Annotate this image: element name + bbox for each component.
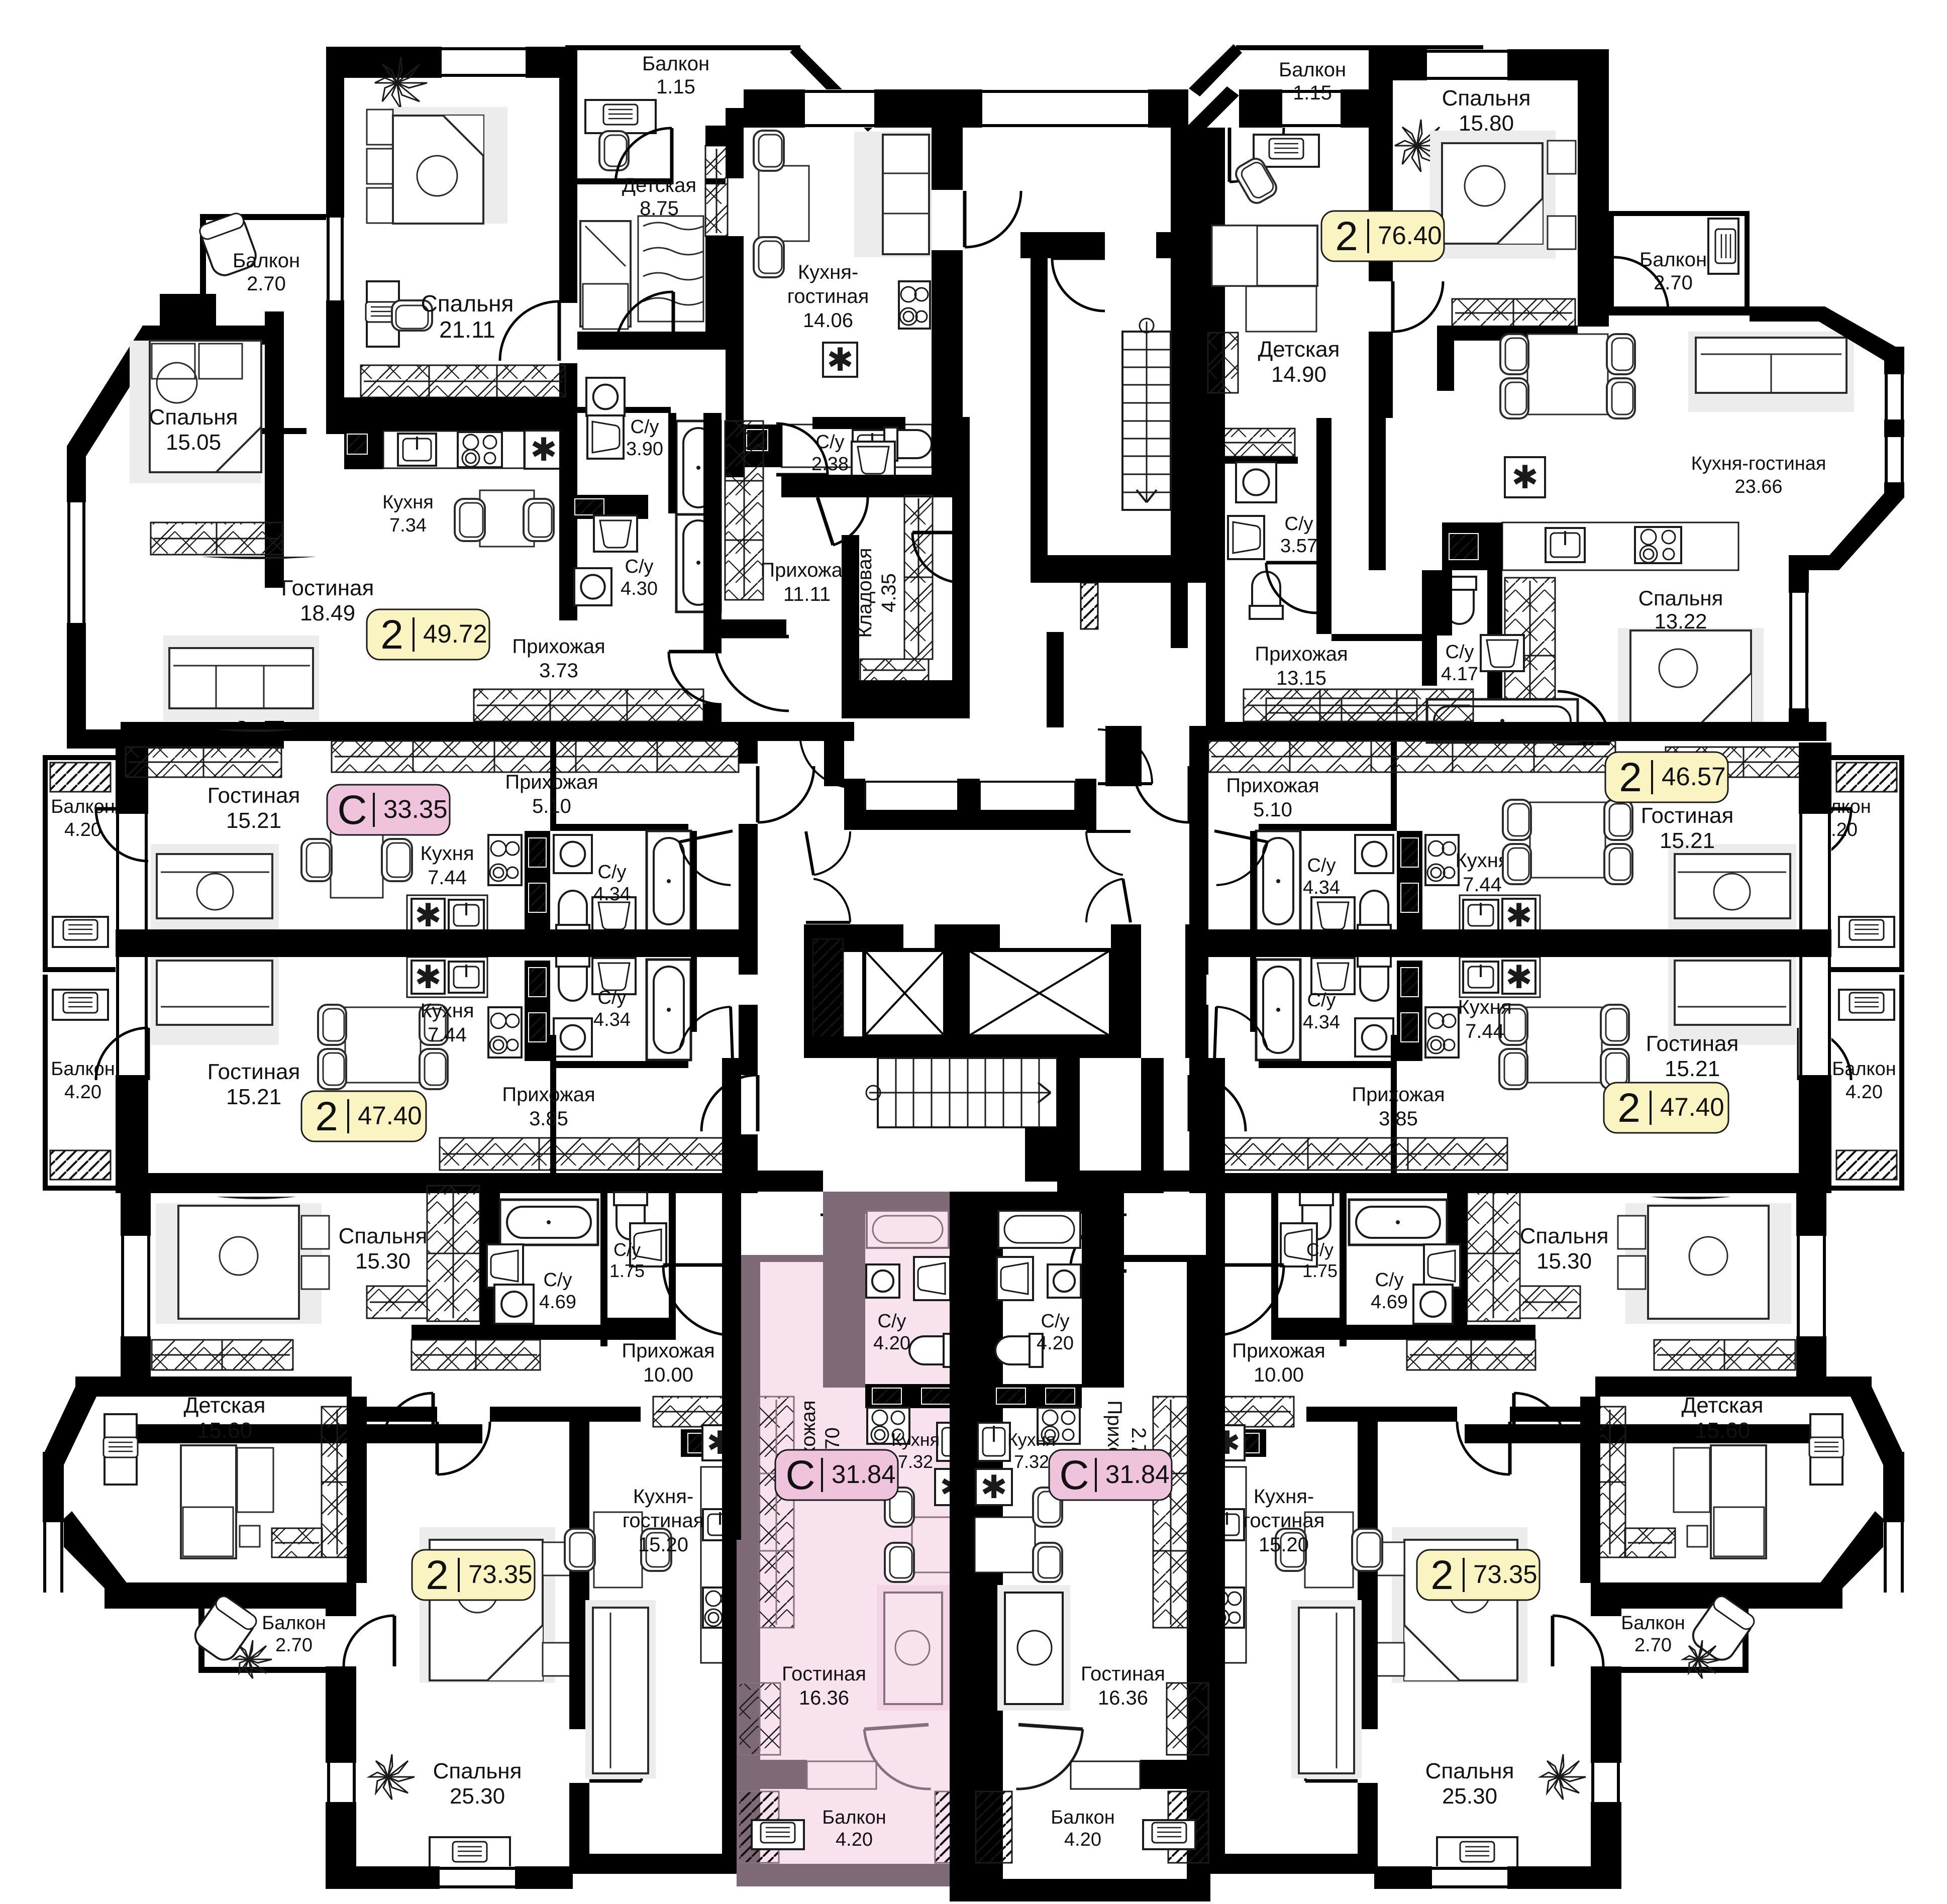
svg-text:73.35: 73.35 <box>468 1560 533 1589</box>
svg-text:4.20: 4.20 <box>1846 1082 1883 1103</box>
svg-text:3.57: 3.57 <box>1280 536 1317 557</box>
svg-text:21.11: 21.11 <box>439 316 495 343</box>
svg-text:✱: ✱ <box>980 1469 1007 1505</box>
svg-text:46.57: 46.57 <box>1662 762 1726 791</box>
svg-text:✱: ✱ <box>415 897 442 933</box>
svg-text:15.21: 15.21 <box>1660 828 1715 853</box>
svg-text:✱: ✱ <box>1505 959 1532 995</box>
svg-text:4.20: 4.20 <box>1037 1333 1074 1354</box>
svg-text:С/у: С/у <box>1041 1311 1070 1332</box>
svg-text:✱: ✱ <box>530 432 557 468</box>
svg-text:С/у: С/у <box>1375 1270 1404 1291</box>
svg-text:4.20: 4.20 <box>64 1082 101 1103</box>
svg-text:гостиная: гостиная <box>787 285 869 307</box>
svg-text:С/у: С/у <box>631 416 659 438</box>
svg-text:гостиная: гостиная <box>623 1510 704 1532</box>
svg-text:25.30: 25.30 <box>1442 1784 1497 1809</box>
svg-text:4.34: 4.34 <box>593 884 631 905</box>
svg-text:31.84: 31.84 <box>1105 1460 1170 1489</box>
svg-text:11.11: 11.11 <box>783 583 831 605</box>
svg-text:33.35: 33.35 <box>383 795 448 823</box>
svg-text:Балкон: Балкон <box>642 53 709 75</box>
svg-text:3.85: 3.85 <box>1379 1108 1418 1130</box>
svg-text:С/у: С/у <box>1307 855 1336 876</box>
svg-text:Кухня: Кухня <box>420 842 474 865</box>
svg-text:2.70: 2.70 <box>275 1635 313 1656</box>
svg-text:31.84: 31.84 <box>832 1460 896 1489</box>
svg-text:7.34: 7.34 <box>389 515 427 536</box>
svg-text:Гостиная: Гостиная <box>281 576 374 600</box>
svg-text:1.75: 1.75 <box>609 1260 645 1281</box>
svg-text:С/у: С/у <box>878 1311 906 1332</box>
svg-text:2: 2 <box>1335 214 1358 259</box>
svg-text:2: 2 <box>1619 755 1642 800</box>
svg-text:Кухня-: Кухня- <box>633 1486 693 1508</box>
svg-text:15.60: 15.60 <box>197 1418 252 1443</box>
svg-text:4.34: 4.34 <box>593 1009 631 1030</box>
svg-text:4.17: 4.17 <box>1441 664 1478 685</box>
svg-text:Балкон: Балкон <box>1832 1059 1896 1080</box>
svg-text:2: 2 <box>1430 1552 1454 1598</box>
svg-text:Кухня-гостиная: Кухня-гостиная <box>1691 453 1826 474</box>
svg-text:7.32: 7.32 <box>1014 1451 1049 1472</box>
svg-text:10.00: 10.00 <box>1254 1364 1304 1386</box>
svg-text:гостиная: гостиная <box>1243 1510 1325 1532</box>
svg-text:Кухня: Кухня <box>382 492 434 513</box>
svg-text:С/у: С/у <box>598 862 627 883</box>
svg-text:18.49: 18.49 <box>300 601 355 625</box>
svg-text:✱: ✱ <box>827 342 854 378</box>
svg-text:Гостиная: Гостиная <box>782 1663 866 1685</box>
svg-text:Прихожая: Прихожая <box>1232 1340 1325 1362</box>
svg-text:2: 2 <box>1617 1085 1641 1131</box>
svg-text:Гостиная: Гостиная <box>208 1060 300 1084</box>
svg-text:Кухня: Кухня <box>891 1429 940 1450</box>
svg-text:✱: ✱ <box>1505 897 1532 933</box>
svg-text:14.90: 14.90 <box>1271 362 1326 387</box>
svg-text:Прихожая: Прихожая <box>1226 775 1319 797</box>
svg-text:15.30: 15.30 <box>355 1249 411 1274</box>
svg-text:4.20: 4.20 <box>873 1333 910 1354</box>
svg-text:16.36: 16.36 <box>799 1687 849 1709</box>
svg-text:Гостиная: Гостиная <box>1641 803 1734 828</box>
svg-text:Прихожая: Прихожая <box>622 1340 714 1362</box>
svg-text:4.20: 4.20 <box>1064 1829 1101 1850</box>
svg-text:С: С <box>785 1452 815 1498</box>
svg-text:5.10: 5.10 <box>532 795 571 817</box>
svg-text:С/у: С/у <box>625 556 654 577</box>
svg-text:Кухня: Кухня <box>1458 996 1511 1018</box>
svg-text:73.35: 73.35 <box>1473 1560 1538 1589</box>
svg-text:13.22: 13.22 <box>1654 609 1707 633</box>
svg-text:Балкон: Балкон <box>51 796 115 817</box>
svg-text:14.06: 14.06 <box>803 309 853 332</box>
svg-text:7.44: 7.44 <box>428 867 467 889</box>
svg-text:7.44: 7.44 <box>1465 1020 1504 1042</box>
svg-text:4.20: 4.20 <box>64 819 101 840</box>
svg-text:Балкон: Балкон <box>1639 249 1707 271</box>
svg-text:15.20: 15.20 <box>638 1534 688 1556</box>
svg-text:Балкон: Балкон <box>233 250 300 272</box>
svg-text:Балкон: Балкон <box>1621 1613 1685 1634</box>
svg-text:15.21: 15.21 <box>1665 1056 1720 1081</box>
svg-text:2.70: 2.70 <box>247 273 286 295</box>
svg-text:7.44: 7.44 <box>428 1024 467 1046</box>
svg-text:10.00: 10.00 <box>643 1364 693 1386</box>
svg-text:Спальня: Спальня <box>1520 1224 1609 1248</box>
svg-text:4.69: 4.69 <box>1371 1292 1408 1313</box>
svg-text:15.30: 15.30 <box>1536 1249 1592 1274</box>
svg-text:23.66: 23.66 <box>1734 476 1782 497</box>
svg-text:С/у: С/у <box>544 1270 572 1291</box>
svg-text:Спальня: Спальня <box>339 1224 428 1248</box>
svg-text:4.20: 4.20 <box>836 1829 873 1850</box>
svg-text:5.10: 5.10 <box>1253 799 1292 821</box>
svg-text:С/у: С/у <box>1446 642 1474 663</box>
svg-text:15.05: 15.05 <box>166 430 221 455</box>
svg-text:2: 2 <box>380 612 403 658</box>
svg-text:1.15: 1.15 <box>1293 82 1332 104</box>
svg-text:Гостиная: Гостиная <box>208 783 300 808</box>
svg-text:3.73: 3.73 <box>539 660 578 682</box>
svg-text:Спальня: Спальня <box>433 1759 522 1783</box>
svg-text:13.15: 13.15 <box>1276 667 1326 689</box>
svg-text:15.21: 15.21 <box>226 808 281 833</box>
svg-text:15.60: 15.60 <box>1695 1418 1750 1443</box>
svg-text:Спальня: Спальня <box>421 290 514 316</box>
svg-text:15.21: 15.21 <box>226 1085 281 1109</box>
svg-text:2: 2 <box>426 1552 449 1598</box>
svg-text:Балкон: Балкон <box>1051 1807 1114 1828</box>
svg-text:4.69: 4.69 <box>539 1292 576 1313</box>
svg-text:Балкон: Балкон <box>1279 59 1346 81</box>
svg-text:3.85: 3.85 <box>529 1108 568 1130</box>
svg-text:С/у: С/у <box>1306 1239 1334 1260</box>
svg-text:Балкон: Балкон <box>822 1807 886 1828</box>
svg-text:С/у: С/у <box>598 987 627 1008</box>
svg-text:С/у: С/у <box>1307 990 1336 1011</box>
svg-text:4.34: 4.34 <box>1303 877 1340 898</box>
svg-text:2: 2 <box>315 1094 338 1139</box>
svg-text:47.40: 47.40 <box>1660 1093 1724 1121</box>
svg-text:Спальня: Спальня <box>1425 1759 1514 1783</box>
svg-text:Кухня: Кухня <box>1007 1429 1056 1450</box>
svg-text:✱: ✱ <box>1511 459 1539 495</box>
svg-text:Гостиная: Гостиная <box>1646 1031 1739 1056</box>
svg-text:С/у: С/у <box>1285 513 1313 535</box>
svg-text:Балкон: Балкон <box>51 1059 115 1080</box>
svg-text:Прихожая: Прихожая <box>1255 643 1348 665</box>
svg-text:4.35: 4.35 <box>878 573 900 612</box>
svg-text:Прихожая: Прихожая <box>1352 1084 1445 1106</box>
svg-text:Детская: Детская <box>184 1393 266 1418</box>
svg-text:2.38: 2.38 <box>811 454 849 475</box>
svg-text:1.75: 1.75 <box>1302 1260 1338 1281</box>
svg-text:4.30: 4.30 <box>621 578 658 599</box>
svg-text:Кухня-: Кухня- <box>1254 1486 1314 1508</box>
svg-text:Прихожая: Прихожая <box>760 559 853 581</box>
svg-text:15.20: 15.20 <box>1259 1534 1309 1556</box>
svg-text:Гостиная: Гостиная <box>1081 1663 1165 1685</box>
svg-text:Кухня: Кухня <box>420 1000 474 1022</box>
svg-text:Прихожая: Прихожая <box>505 771 598 793</box>
svg-text:С: С <box>1059 1452 1089 1498</box>
svg-text:Прихожая: Прихожая <box>512 636 605 658</box>
svg-text:1.15: 1.15 <box>656 76 695 98</box>
svg-text:4.34: 4.34 <box>1303 1012 1340 1033</box>
svg-text:Спальня: Спальня <box>149 405 238 430</box>
svg-text:3.90: 3.90 <box>626 439 663 460</box>
svg-text:2.70: 2.70 <box>1634 1635 1672 1656</box>
svg-text:С/у: С/у <box>613 1239 641 1260</box>
svg-text:Кладовая: Кладовая <box>854 548 876 638</box>
svg-text:Кухня-: Кухня- <box>798 261 858 283</box>
svg-text:Спальня: Спальня <box>1442 86 1531 111</box>
svg-text:С: С <box>337 787 367 833</box>
svg-text:Прихожая: Прихожая <box>502 1084 595 1106</box>
svg-text:Кухня: Кухня <box>1455 850 1509 872</box>
svg-text:47.40: 47.40 <box>358 1101 422 1130</box>
svg-text:7.32: 7.32 <box>898 1451 933 1472</box>
svg-text:Детская: Детская <box>1682 1393 1764 1418</box>
svg-text:Детская: Детская <box>1258 337 1340 362</box>
svg-text:7.44: 7.44 <box>1463 874 1502 896</box>
svg-text:Спальня: Спальня <box>1638 586 1723 610</box>
svg-text:25.30: 25.30 <box>450 1784 505 1809</box>
svg-text:16.36: 16.36 <box>1098 1687 1148 1709</box>
svg-text:76.40: 76.40 <box>1378 221 1442 250</box>
svg-text:49.72: 49.72 <box>423 619 487 648</box>
svg-text:✱: ✱ <box>415 959 442 995</box>
svg-text:Детская: Детская <box>622 174 696 196</box>
svg-text:Балкон: Балкон <box>262 1613 326 1634</box>
